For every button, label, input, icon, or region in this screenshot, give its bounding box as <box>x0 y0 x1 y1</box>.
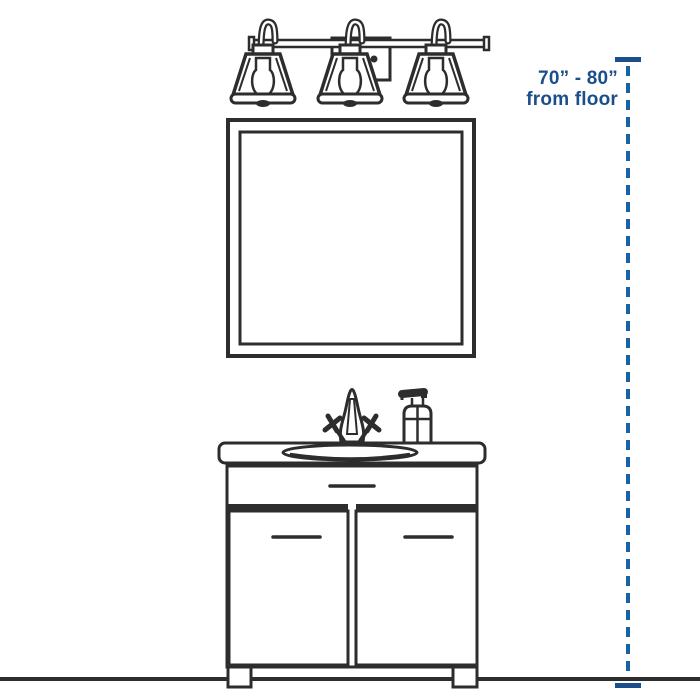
vanity <box>219 390 485 688</box>
faucet <box>325 390 379 443</box>
cabinet-door-left <box>229 511 348 665</box>
vanity-light-fixture <box>231 22 489 107</box>
light-shade-right <box>404 22 468 107</box>
height-dimension-line <box>615 57 641 688</box>
height-annotation: 70” - 80” from floor <box>526 68 618 110</box>
height-range-label: 70” - 80” <box>526 68 618 89</box>
soap-pump-nozzle <box>402 392 424 394</box>
dimension-bottom-cap <box>615 683 641 688</box>
fixture-bar-right-cap <box>484 37 489 50</box>
cabinet-door-right <box>356 511 477 665</box>
cabinet-rail-right <box>356 504 477 510</box>
dimension-top-cap <box>615 57 641 62</box>
mirror <box>228 120 474 356</box>
mounting-plate-screw <box>371 56 378 63</box>
mirror-outer-frame <box>228 120 474 356</box>
cabinet-foot-right <box>453 667 477 687</box>
height-from-label: from floor <box>526 89 618 110</box>
cabinet-foot-left <box>228 667 251 687</box>
diagram-stage: 70” - 80” from floor <box>0 0 700 700</box>
soap-dispenser <box>402 392 431 443</box>
light-shade-left <box>231 22 295 107</box>
cabinet-rail-left <box>227 504 348 510</box>
